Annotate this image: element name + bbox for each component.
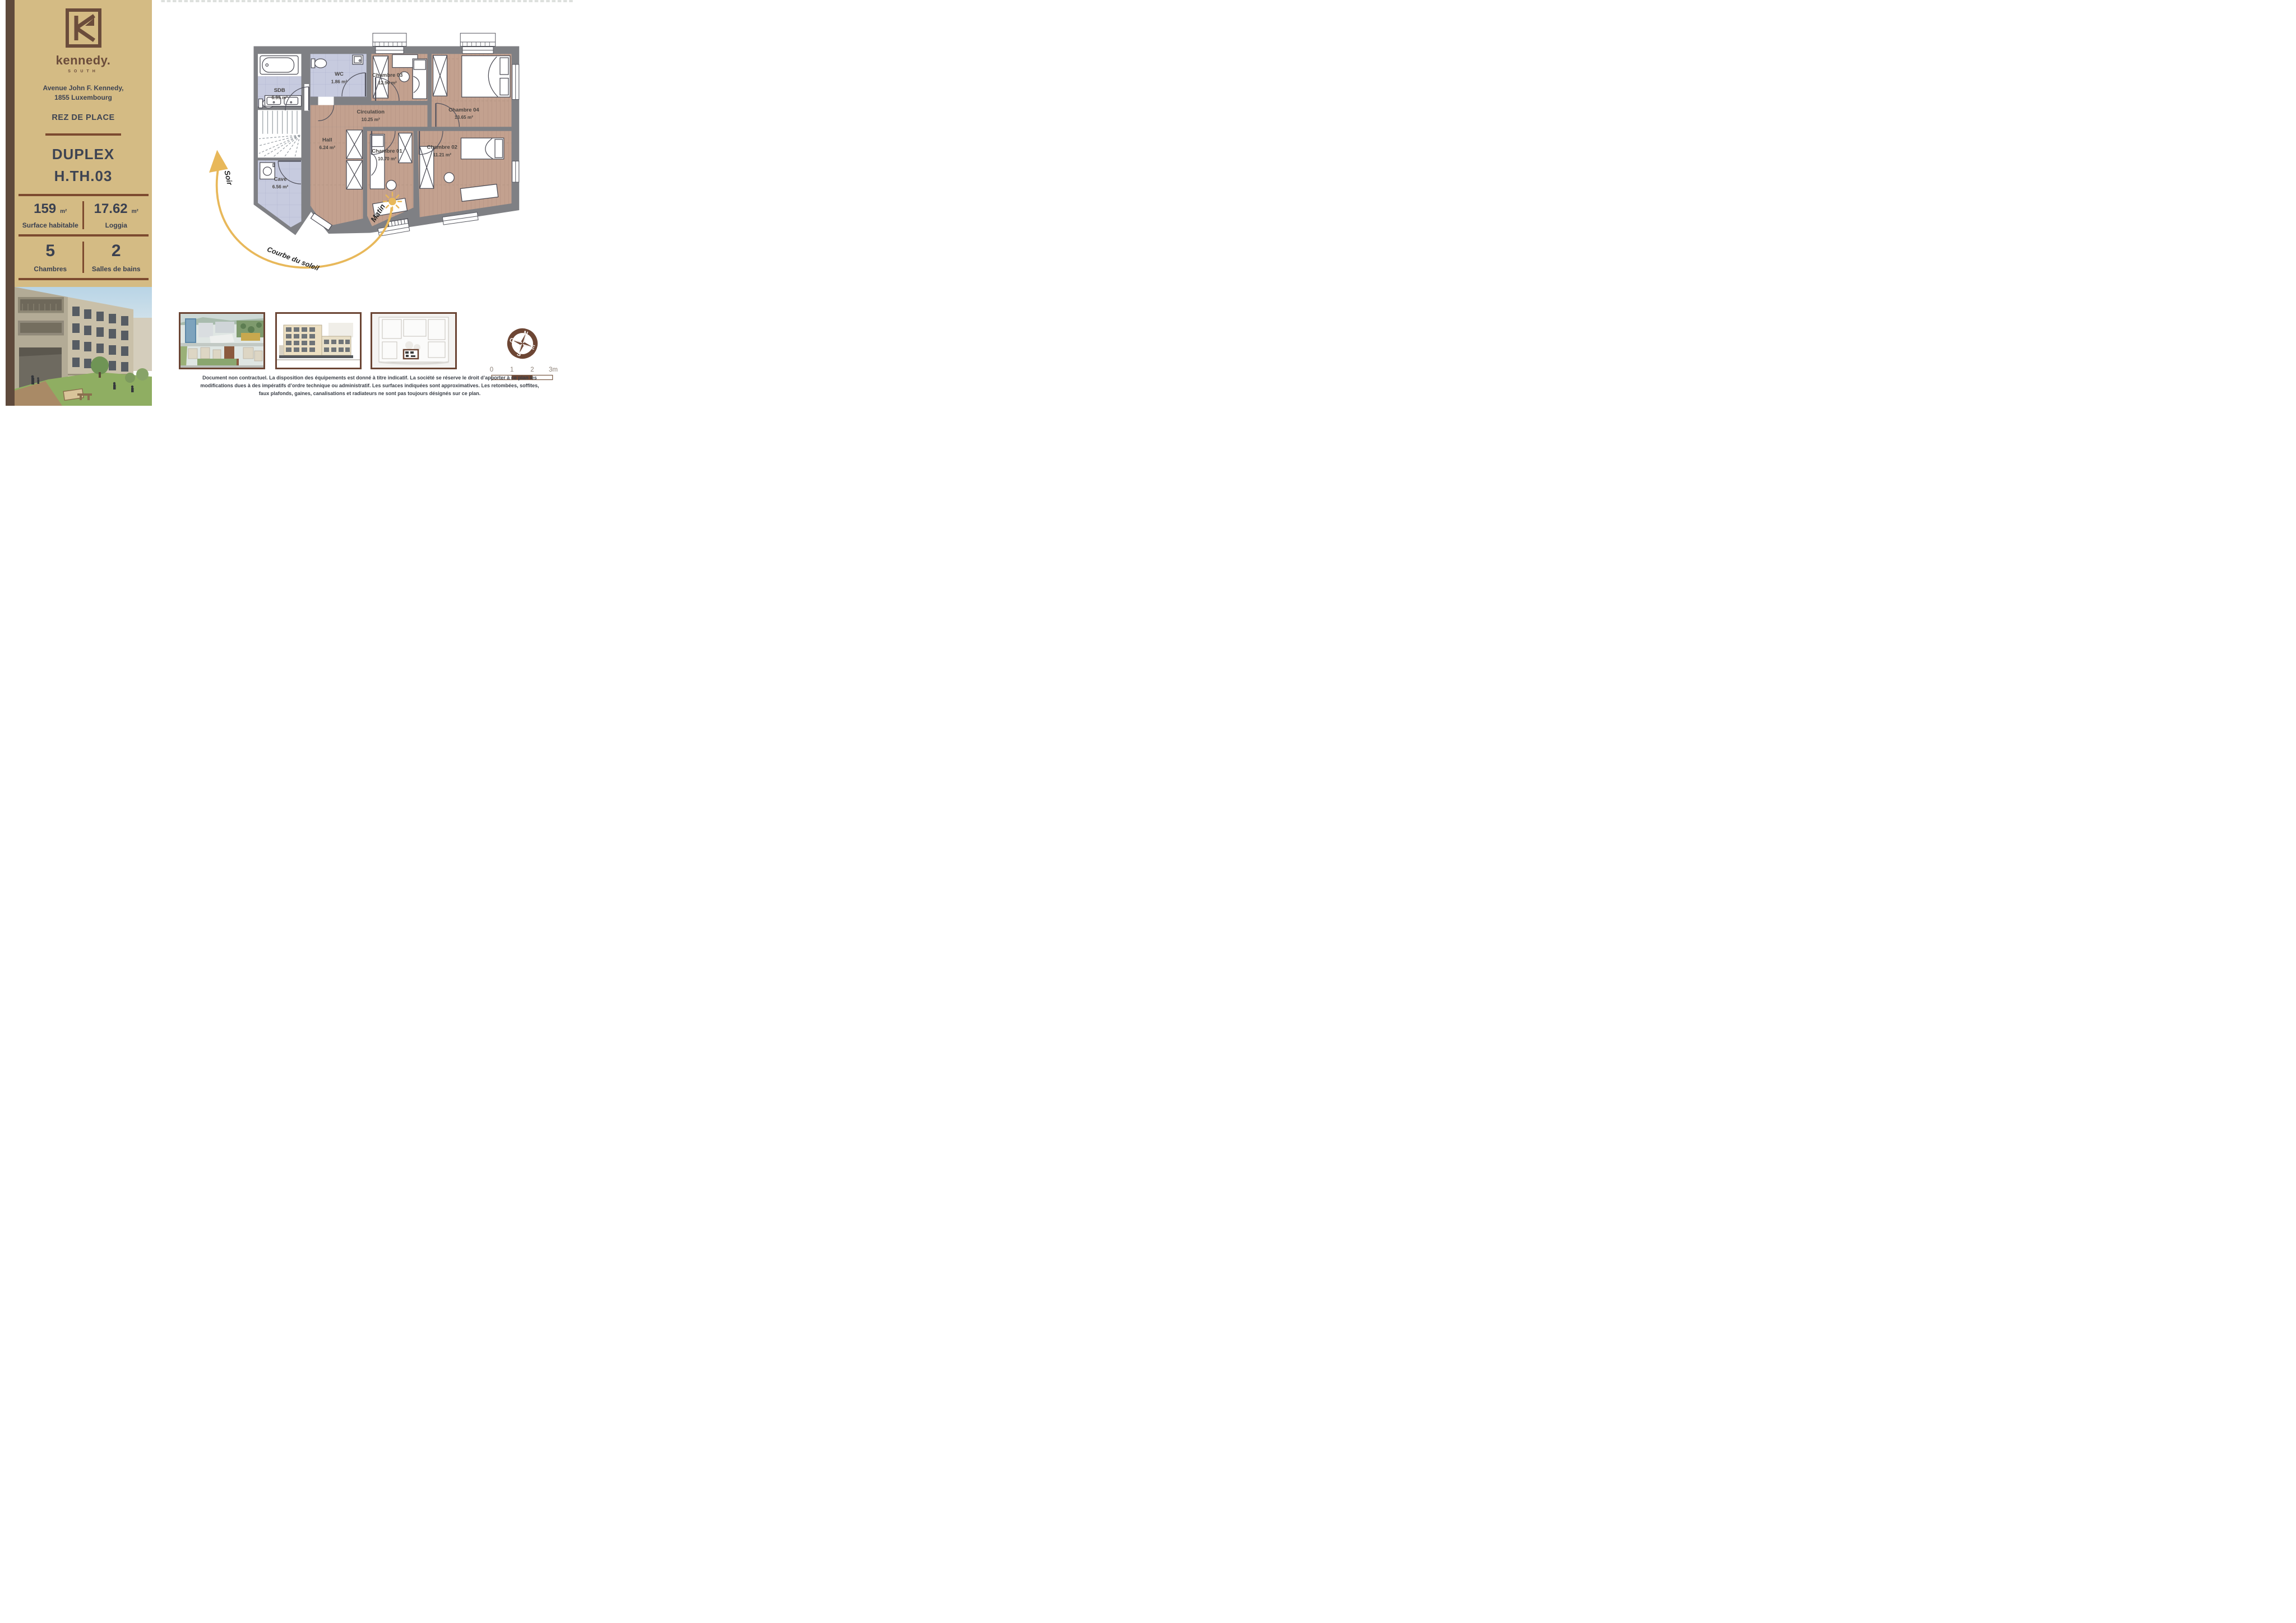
wc-sink-icon xyxy=(353,55,363,64)
chambre02-furniture xyxy=(420,138,504,201)
brand-subtitle: SOUTH xyxy=(15,69,152,73)
sun-morning-label: Matin xyxy=(369,202,387,224)
label-wc-area: 1.86 m² xyxy=(331,79,348,84)
baths-value: 2 xyxy=(84,242,149,261)
room-circulation xyxy=(311,105,428,127)
project-address: Avenue John F. Kennedy, 1855 Luxembourg xyxy=(15,84,152,103)
room-chambre04 xyxy=(432,54,512,127)
scale-2-label: 2 xyxy=(530,367,534,373)
label-sdb-name: SDB xyxy=(274,87,285,94)
left-accent-stripe xyxy=(6,0,15,406)
thumbnail-elevation xyxy=(275,312,362,369)
unit-type: DUPLEX xyxy=(15,143,152,165)
label-cave-area: 6.56 m² xyxy=(272,184,289,189)
label-hall-name: Hall xyxy=(322,137,332,143)
scale-0-label: 0 xyxy=(490,367,493,373)
chambre01-furniture xyxy=(371,133,413,227)
room-sdb-tub-alcove xyxy=(258,54,302,76)
room-cave xyxy=(258,160,302,227)
thumbnail-aerial-view xyxy=(179,312,265,369)
room-stairs xyxy=(258,110,302,157)
brochure-page: kennedy. SOUTH Avenue John F. Kennedy, 1… xyxy=(0,0,574,406)
sun-path xyxy=(217,168,392,268)
stair-treads xyxy=(259,111,300,157)
stat-surface: 159m² Surface habitable xyxy=(18,201,83,229)
wardrobe-icon xyxy=(346,130,363,189)
stat-loggia: 17.62m² Loggia xyxy=(82,201,149,229)
compass-east-label: E xyxy=(530,344,536,351)
bedrooms-label: Chambres xyxy=(18,265,83,273)
label-circulation-area: 10.25 m² xyxy=(362,117,380,122)
loggia-icon xyxy=(373,33,406,46)
surface-value: 159 xyxy=(34,201,56,216)
unit-title: DUPLEX H.TH.03 xyxy=(15,143,152,187)
highlighted-unit xyxy=(404,350,418,359)
stat-baths: 2 Salles de bains xyxy=(82,242,149,273)
room-chambre03 xyxy=(372,54,428,101)
label-ch01-name: Chambre 01 xyxy=(372,149,402,155)
bedrooms-value: 5 xyxy=(18,242,83,261)
stats-row-counts: 5 Chambres 2 Salles de bains xyxy=(18,237,149,278)
unit-stats: 159m² Surface habitable 17.62m² Loggia 5… xyxy=(15,194,152,280)
label-hall-area: 6.24 m² xyxy=(320,145,336,150)
toilet-icon xyxy=(259,99,275,108)
label-ch01-area: 10.70 m² xyxy=(378,156,396,161)
label-ch02-name: Chambre 02 xyxy=(427,145,457,151)
thumbnail-site-plan xyxy=(371,312,457,369)
door-swings xyxy=(278,73,459,184)
brand-wordmark: kennedy. xyxy=(15,53,152,68)
sun-arrow-icon xyxy=(209,150,228,173)
room-chambre01 xyxy=(367,131,414,226)
double-sink-icon xyxy=(265,96,302,106)
fixtures xyxy=(259,55,511,230)
unit-code: H.TH.03 xyxy=(15,165,152,187)
label-wc-name: WC xyxy=(335,71,344,77)
compass-west-label: O xyxy=(508,337,515,345)
label-ch02-area: 11.21 m² xyxy=(433,152,451,157)
label-ch04-name: Chambre 04 xyxy=(448,107,479,113)
stats-row-areas: 159m² Surface habitable 17.62m² Loggia xyxy=(18,196,149,234)
label-cave-name: Cave xyxy=(274,177,287,183)
label-circulation-name: Circulation xyxy=(357,109,385,115)
compass-icon: N E S O xyxy=(505,326,539,361)
label-ch04-area: 13.65 m² xyxy=(455,115,473,120)
sun-curve: Soir Matin Courbe du soleil xyxy=(209,150,401,273)
compass-south-label: S xyxy=(516,350,522,358)
label-ch03-name: Chambre 03 xyxy=(372,72,402,78)
sidebar: kennedy. SOUTH Avenue John F. Kennedy, 1… xyxy=(15,0,152,287)
scale-1-label: 1 xyxy=(510,367,513,373)
windows xyxy=(373,33,519,236)
label-ch03-area: 12.90 m² xyxy=(378,80,397,85)
building-photo xyxy=(15,287,152,406)
disclaimer-line-2: modifications dues à des impératifs d’or… xyxy=(189,382,550,390)
photo-building-far xyxy=(133,318,152,371)
room-chambre02 xyxy=(418,131,512,217)
stat-bedrooms: 5 Chambres xyxy=(18,242,83,273)
sun-icon xyxy=(383,193,401,211)
photo-tree xyxy=(91,356,109,374)
chambre04-furniture xyxy=(433,55,511,98)
sun-evening-label: Soir xyxy=(223,170,234,187)
loggia-label: Loggia xyxy=(84,221,149,229)
entry-door xyxy=(311,213,332,230)
room-sdb xyxy=(258,76,302,106)
room-wc xyxy=(311,54,367,96)
disclaimer-line-3: faux plafonds, gaines, canalisations et … xyxy=(189,390,550,398)
label-sdb-area: 6.99 m² xyxy=(272,95,288,100)
baths-label: Salles de bains xyxy=(84,265,149,273)
floor-label: REZ DE PLACE xyxy=(15,113,152,122)
room-fills xyxy=(258,54,512,227)
sun-curve-label: Courbe du soleil xyxy=(266,245,320,272)
stats-divider-bottom xyxy=(18,278,149,280)
disclaimer: Document non contractuel. La disposition… xyxy=(189,374,550,398)
divider-line xyxy=(45,133,121,136)
compass-north-label: N xyxy=(522,330,529,337)
plan-walls xyxy=(254,47,520,235)
surface-unit: m² xyxy=(60,208,67,215)
loggia-unit: m² xyxy=(132,208,138,215)
washing-machine-icon xyxy=(260,163,275,179)
wc-toilet-icon xyxy=(311,59,326,68)
scale-3m-label: 3m xyxy=(549,367,558,373)
surface-label: Surface habitable xyxy=(18,221,83,229)
loggia-value: 17.62 xyxy=(94,201,128,216)
address-line-1: Avenue John F. Kennedy, xyxy=(15,84,152,93)
bathtub-icon xyxy=(260,56,298,75)
room-labels: SDB 6.99 m² WC 1.86 m² Chambre 03 12.90 … xyxy=(272,71,480,189)
chambre03-furniture xyxy=(373,55,427,99)
kennedy-logo-icon xyxy=(15,8,152,51)
room-hall xyxy=(311,127,363,226)
window-icon xyxy=(376,47,404,54)
disclaimer-line-1: Document non contractuel. La disposition… xyxy=(189,374,550,382)
address-line-2: 1855 Luxembourg xyxy=(15,93,152,103)
